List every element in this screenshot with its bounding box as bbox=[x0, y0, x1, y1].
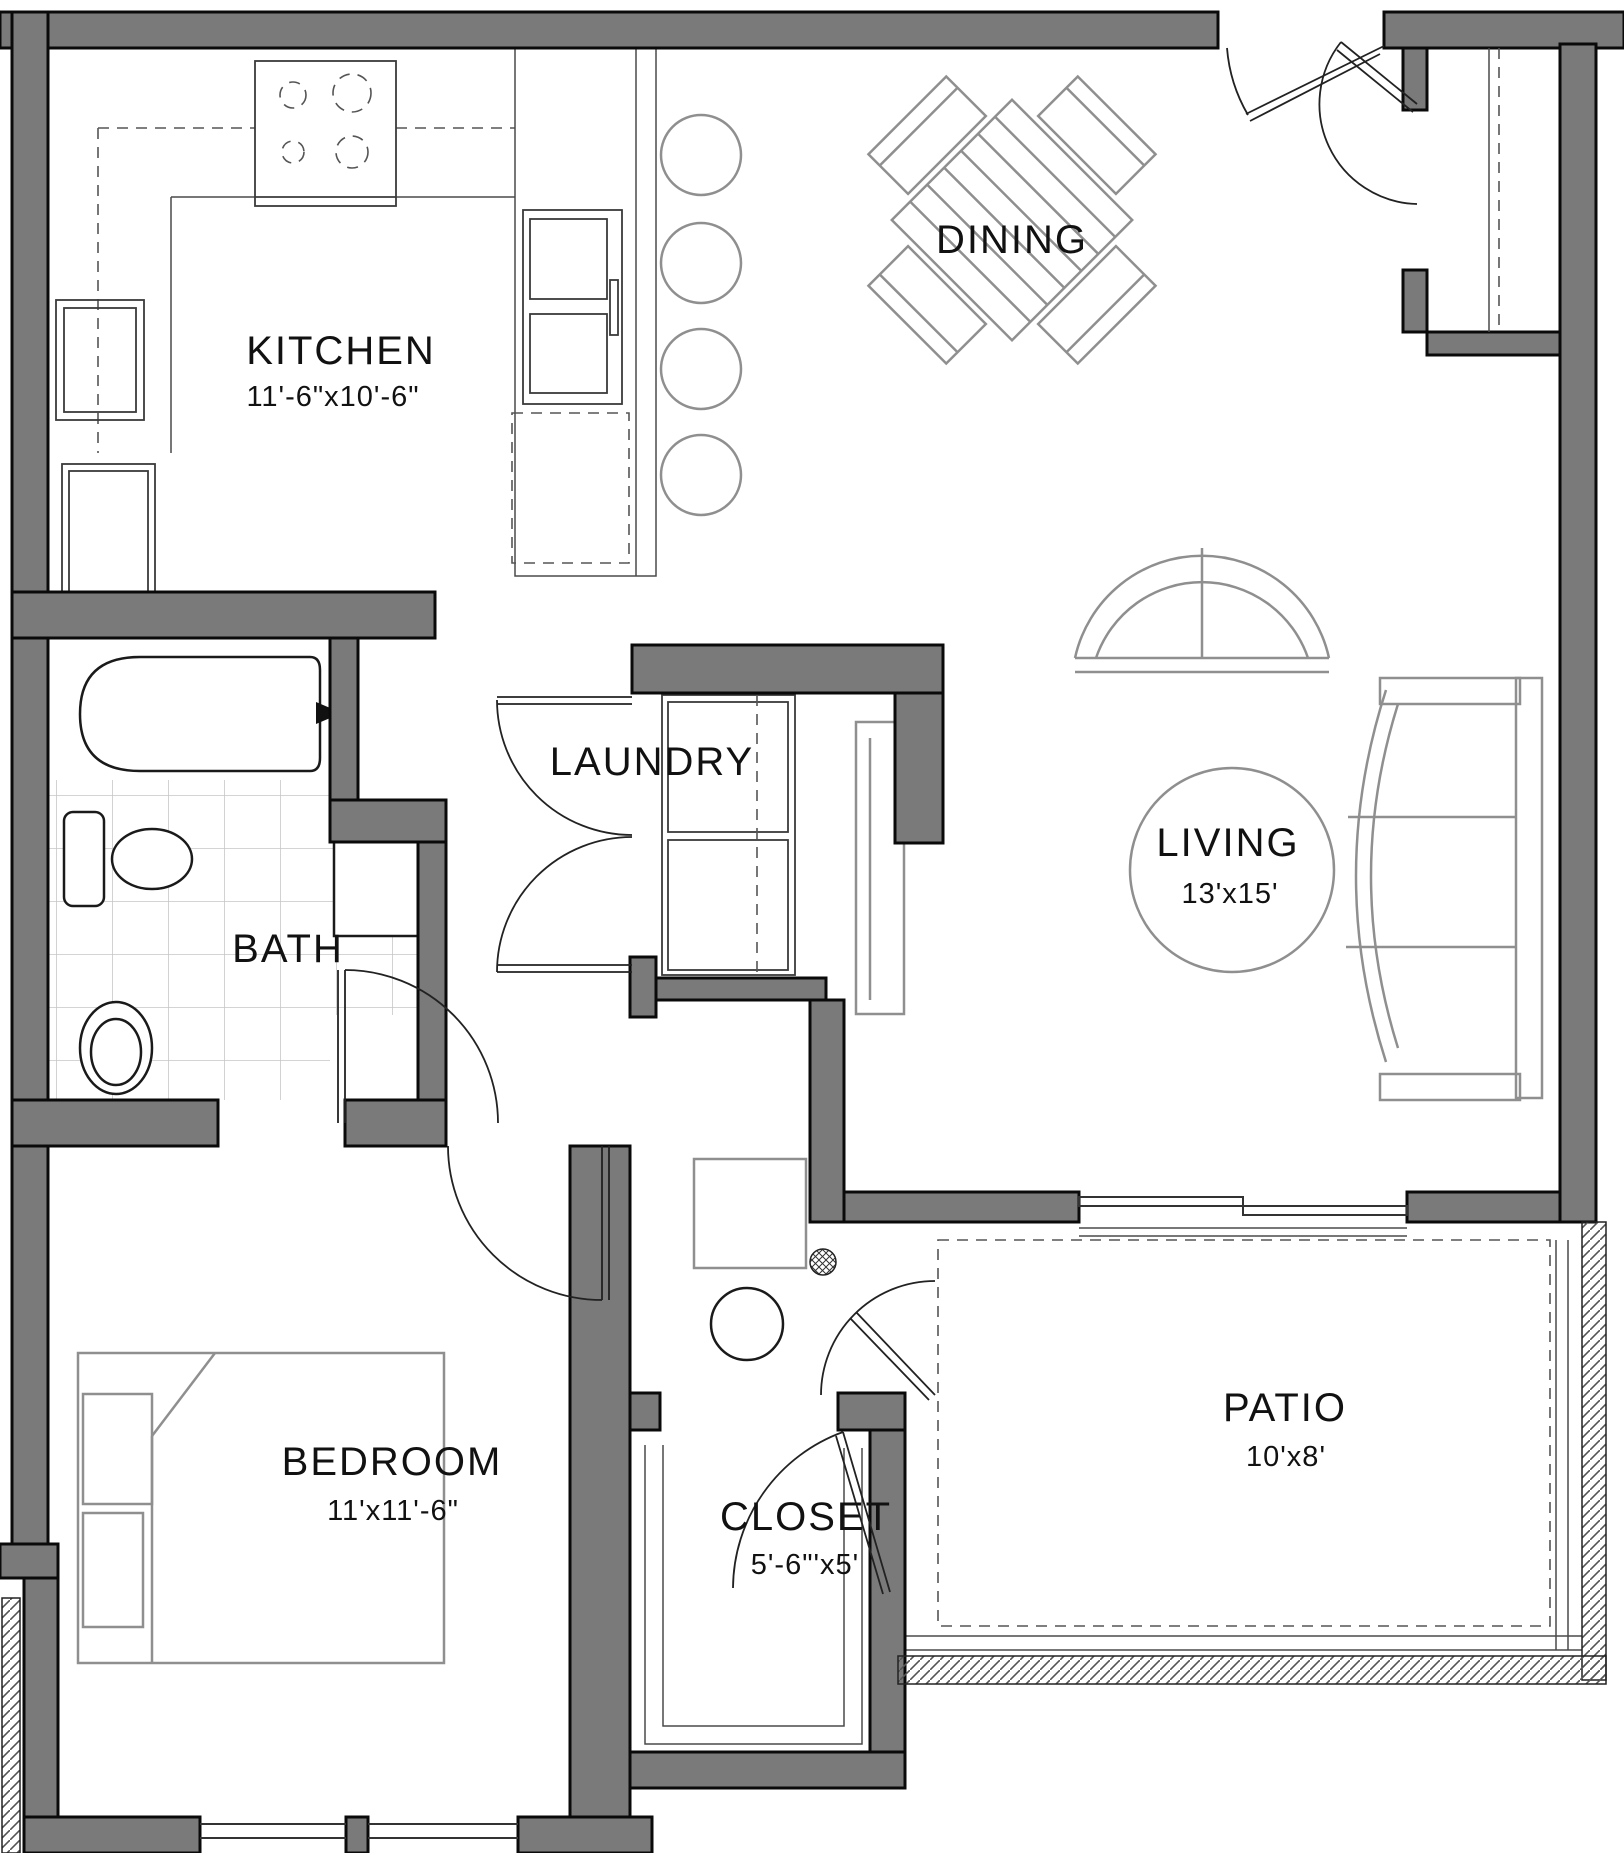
coat-closet-rod-icon bbox=[1489, 48, 1499, 332]
patio-wall-east bbox=[1582, 1222, 1606, 1680]
wall-right bbox=[1560, 44, 1596, 1222]
kitchen-sink-icon bbox=[523, 210, 622, 404]
furnace-icon bbox=[694, 1159, 806, 1268]
water-heater-icon bbox=[711, 1288, 783, 1360]
stool-icon bbox=[661, 223, 741, 303]
wall-left bbox=[12, 12, 48, 1544]
closet-dims: 5'-6"'x5' bbox=[751, 1549, 859, 1581]
wall-entry-closet-south bbox=[1427, 332, 1560, 355]
patio-dims: 10'x8' bbox=[1246, 1441, 1326, 1473]
wall-entry-closet-stub2 bbox=[1403, 270, 1427, 332]
washer-dryer-icon bbox=[662, 695, 795, 975]
arched-window-icon bbox=[1075, 548, 1329, 672]
nightstand-icon bbox=[83, 1394, 152, 1504]
range-cooktop-icon bbox=[255, 61, 396, 206]
laundry-doors-icon bbox=[497, 697, 632, 972]
patio-door-icon bbox=[821, 1281, 935, 1400]
wall-kitchen-bath bbox=[12, 592, 435, 638]
doors bbox=[338, 42, 1417, 1594]
living-label: LIVING bbox=[1156, 821, 1299, 865]
patio-wall-south bbox=[898, 1656, 1606, 1684]
pantry-cabinet-icon bbox=[56, 300, 144, 420]
closet-label: CLOSET bbox=[720, 1495, 892, 1539]
sofa-icon bbox=[1346, 678, 1542, 1100]
kitchen-dims: 11'-6"x10'-6" bbox=[246, 381, 419, 413]
living-dims: 13'x15' bbox=[1181, 878, 1278, 910]
sliding-glass-door-icon bbox=[1079, 1197, 1407, 1215]
wall-laundry-north bbox=[632, 645, 943, 693]
floor-plan-page: KITCHEN 11'-6"x10'-6" DINING LIVING 13'x… bbox=[0, 0, 1624, 1853]
patio-label: PATIO bbox=[1223, 1386, 1347, 1430]
wall-bedroom-east bbox=[570, 1146, 630, 1817]
kitchen-label: KITCHEN bbox=[246, 329, 436, 373]
dishwasher-icon bbox=[512, 413, 629, 563]
wall-bath-jog bbox=[330, 800, 446, 842]
bathtub-icon bbox=[80, 657, 342, 771]
stool-icon bbox=[661, 115, 741, 195]
stool-icon bbox=[661, 329, 741, 409]
dining-chair-icon bbox=[868, 76, 985, 193]
bar-stools bbox=[661, 115, 741, 515]
breakfast-bar bbox=[515, 48, 656, 576]
floor-drain-icon bbox=[810, 1249, 836, 1275]
wall-living-south-left bbox=[844, 1192, 1079, 1222]
floor-plan: KITCHEN 11'-6"x10'-6" DINING LIVING 13'x… bbox=[0, 0, 1624, 1853]
wall-closet-east bbox=[870, 1430, 905, 1788]
wall-left-bump bbox=[0, 1544, 58, 1578]
bath-sink-icon bbox=[80, 1002, 152, 1094]
wall-bath-south bbox=[12, 1100, 218, 1146]
wall-entry-closet-stub1 bbox=[1403, 48, 1427, 110]
refrigerator-icon bbox=[62, 464, 159, 608]
wall-laundry-south bbox=[654, 978, 826, 1000]
wall-closet-north-right bbox=[838, 1393, 905, 1430]
wall-laundry-east bbox=[895, 693, 943, 843]
bath-label: BATH bbox=[232, 927, 344, 971]
burner-icon bbox=[336, 136, 368, 168]
foundation-wall-left bbox=[2, 1598, 20, 1853]
door-threshold bbox=[1079, 1228, 1407, 1236]
wall-living-south-right bbox=[1407, 1192, 1560, 1222]
wall-left-lower bbox=[24, 1578, 58, 1853]
nightstand-icon bbox=[83, 1513, 143, 1627]
burner-icon bbox=[333, 74, 371, 112]
wall-bath-south2 bbox=[345, 1100, 446, 1146]
wall-bottom-left bbox=[24, 1817, 200, 1853]
bedroom-dims: 11'x11'-6" bbox=[327, 1495, 459, 1527]
wall-top-left bbox=[0, 12, 1218, 48]
burner-icon bbox=[282, 141, 304, 163]
wall-bath-east-upper bbox=[330, 638, 358, 808]
wall-hall-east bbox=[810, 1000, 844, 1222]
wall-hall-stub bbox=[630, 957, 656, 1017]
burner-icon bbox=[280, 82, 306, 108]
wall-closet-north-left bbox=[630, 1393, 660, 1430]
dining-label: DINING bbox=[936, 218, 1088, 262]
bedroom-label: BEDROOM bbox=[282, 1440, 503, 1484]
closet-shelving-icon bbox=[645, 1445, 862, 1744]
dining-chair-icon bbox=[1038, 246, 1155, 363]
linen-cabinet-icon bbox=[334, 828, 418, 936]
area-rug-icon bbox=[1130, 768, 1334, 972]
laundry-label: LAUNDRY bbox=[550, 740, 754, 784]
kitchen-fixtures bbox=[56, 48, 741, 608]
window-mullion bbox=[346, 1817, 368, 1853]
counter-edge bbox=[171, 197, 515, 453]
blanket-fold bbox=[152, 1353, 215, 1436]
wall-closet-south bbox=[630, 1752, 905, 1788]
stool-icon bbox=[661, 435, 741, 515]
wall-bottom-right bbox=[518, 1817, 652, 1853]
dining-chair-icon bbox=[868, 246, 985, 363]
patio-slab bbox=[900, 1228, 1582, 1650]
